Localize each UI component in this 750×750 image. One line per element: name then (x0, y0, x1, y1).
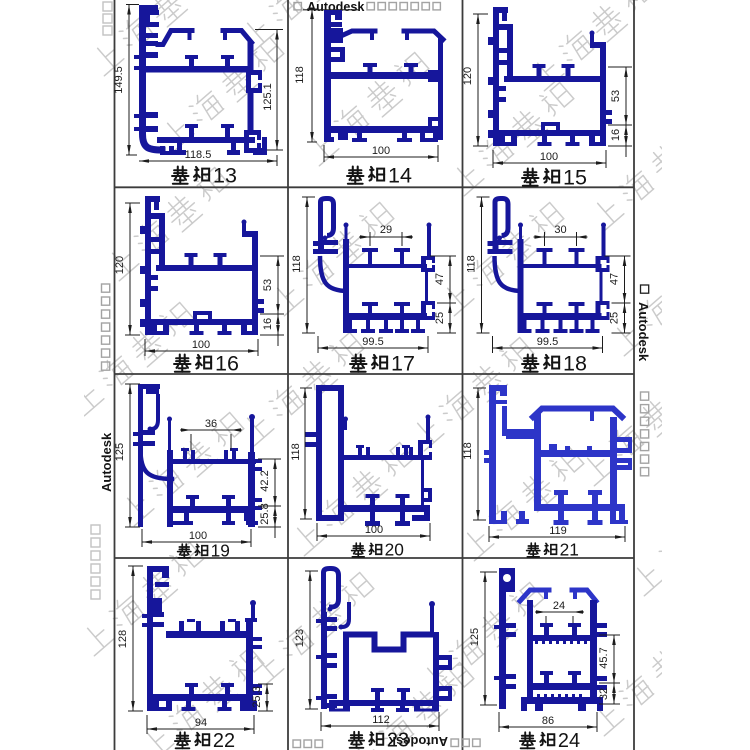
svg-text:21: 21 (560, 540, 579, 560)
svg-text:29: 29 (380, 224, 392, 236)
svg-text:118: 118 (291, 255, 303, 273)
svg-text:100: 100 (540, 151, 558, 163)
svg-text:15: 15 (563, 166, 587, 190)
svg-text:25: 25 (609, 312, 621, 324)
svg-text:19: 19 (211, 541, 230, 561)
svg-text:47: 47 (609, 273, 621, 285)
svg-text:100: 100 (192, 339, 210, 351)
svg-text:118: 118 (290, 443, 302, 461)
svg-text:25.3: 25.3 (251, 686, 263, 707)
svg-text:25.8: 25.8 (259, 503, 271, 524)
svg-text:18: 18 (563, 352, 587, 376)
svg-text:22: 22 (213, 730, 235, 750)
svg-text:99.5: 99.5 (537, 336, 558, 348)
svg-text:14: 14 (388, 164, 412, 188)
svg-text:53: 53 (262, 279, 274, 291)
svg-text:112: 112 (372, 714, 390, 726)
svg-text:118: 118 (466, 255, 478, 273)
svg-text:24: 24 (558, 730, 580, 750)
svg-text:45.7: 45.7 (598, 647, 610, 668)
svg-text:128: 128 (117, 630, 129, 648)
svg-text:100: 100 (189, 530, 207, 542)
svg-text:13: 13 (213, 164, 237, 188)
svg-text:123: 123 (294, 629, 306, 647)
svg-text:100: 100 (365, 524, 383, 536)
svg-text:118: 118 (462, 442, 474, 460)
svg-text:120: 120 (114, 256, 126, 274)
svg-text:17: 17 (391, 352, 415, 376)
svg-text:125: 125 (114, 443, 126, 461)
svg-text:99.5: 99.5 (362, 336, 383, 348)
svg-text:16: 16 (262, 318, 274, 330)
svg-text:53: 53 (610, 90, 622, 102)
svg-text:120: 120 (462, 67, 474, 85)
svg-text:16: 16 (610, 129, 622, 141)
svg-text:119: 119 (549, 525, 567, 537)
svg-text:125.1: 125.1 (262, 83, 274, 111)
svg-text:86: 86 (542, 715, 554, 727)
svg-text:Autodesk: Autodesk (388, 734, 448, 749)
svg-text:25: 25 (434, 312, 446, 324)
svg-text:Autodesk: Autodesk (636, 302, 651, 362)
svg-text:20: 20 (385, 540, 404, 560)
svg-text:149.5: 149.5 (113, 66, 125, 94)
svg-text:94: 94 (195, 717, 207, 729)
svg-text:Autodesk: Autodesk (99, 432, 114, 492)
svg-text:30: 30 (554, 224, 566, 236)
svg-text:125: 125 (469, 628, 481, 646)
svg-text:16: 16 (215, 352, 239, 376)
svg-text:24: 24 (553, 600, 565, 612)
svg-text:32: 32 (598, 688, 610, 700)
svg-text:36: 36 (205, 418, 217, 430)
svg-text:42.2: 42.2 (259, 470, 271, 491)
svg-text:118.5: 118.5 (185, 149, 212, 161)
svg-text:100: 100 (372, 145, 390, 157)
svg-text:47: 47 (434, 273, 446, 285)
svg-text:118: 118 (294, 66, 306, 84)
